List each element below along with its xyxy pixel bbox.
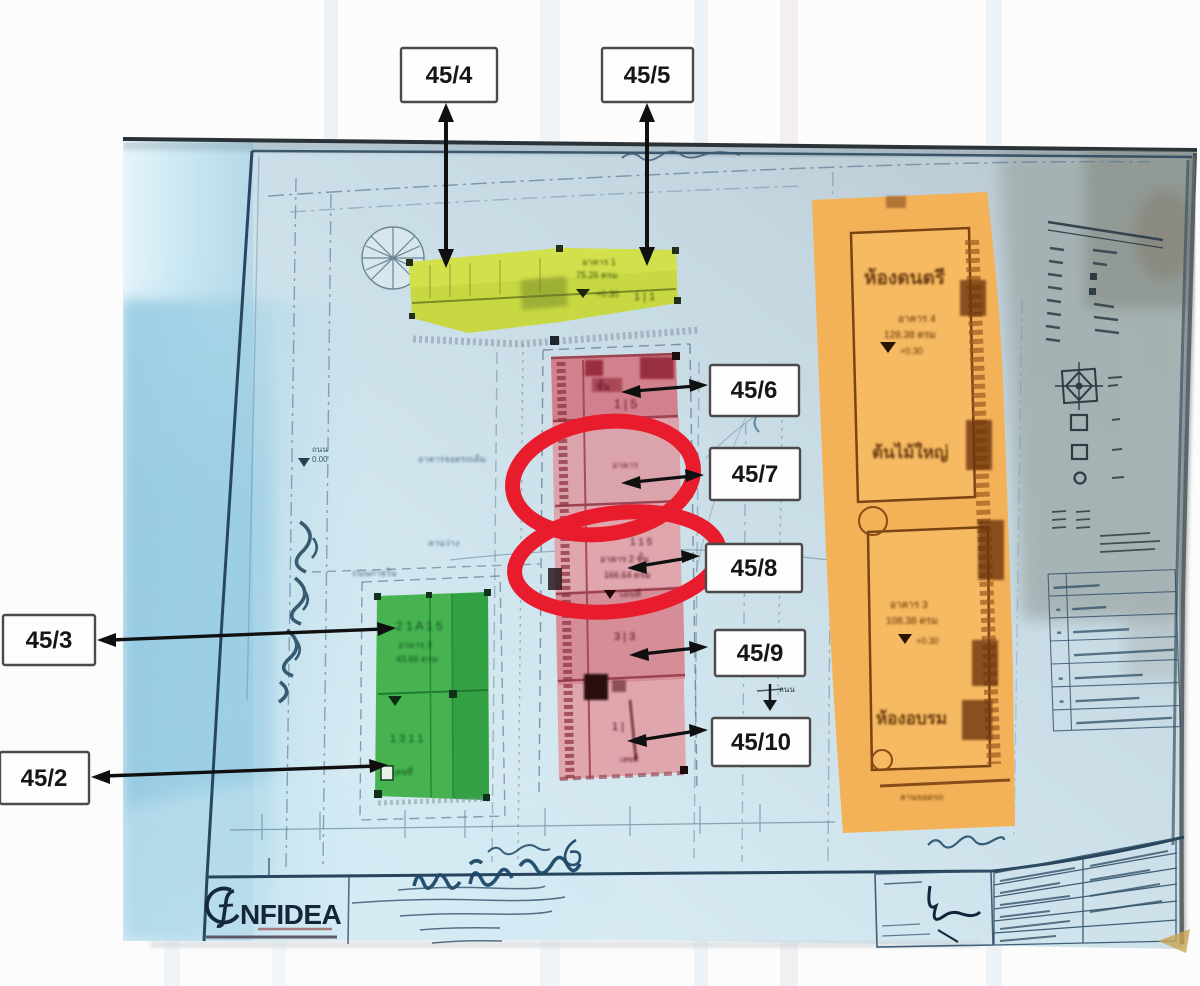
svg-text:ลานว่าง: ลานว่าง: [428, 538, 459, 548]
svg-text:ห้องอบรม: ห้องอบรม: [876, 709, 947, 728]
svg-text:ลานจอดรถ: ลานจอดรถ: [900, 792, 944, 802]
svg-text:ถนน: ถนน: [779, 685, 795, 694]
svg-text:เลขที่: เลขที่: [392, 765, 413, 777]
svg-text:43.66 ตรม: 43.66 ตรม: [396, 654, 438, 664]
svg-text:1 | 5: 1 | 5: [614, 397, 637, 411]
svg-text:อาคารจอดรถเดิม: อาคารจอดรถเดิม: [418, 454, 486, 464]
svg-text:45/8: 45/8: [731, 555, 778, 582]
svg-text:2 1 A 1 5: 2 1 A 1 5: [396, 619, 443, 633]
svg-text:45/9: 45/9: [737, 640, 784, 667]
svg-text:1 | 1: 1 | 1: [634, 291, 655, 303]
svg-text:อาคาร: อาคาร: [612, 460, 639, 470]
svg-text:+0.30: +0.30: [916, 636, 939, 646]
svg-text:45/4: 45/4: [426, 62, 473, 89]
svg-text:อาคาร 2 ชั้น: อาคาร 2 ชั้น: [600, 552, 649, 564]
svg-text:45/10: 45/10: [731, 729, 791, 756]
svg-text:1 1 5: 1 1 5: [630, 537, 653, 548]
svg-text:เลขที่: เลขที่: [620, 587, 641, 599]
svg-text:108.38 ตรม: 108.38 ตรม: [886, 616, 938, 627]
svg-text:อาคาร 3: อาคาร 3: [890, 600, 928, 611]
svg-text:NFIDEA: NFIDEA: [240, 899, 342, 930]
svg-text:ถนนภายใน: ถนนภายใน: [352, 568, 397, 578]
svg-text:อาคาร 3: อาคาร 3: [398, 640, 432, 650]
svg-text:1 |: 1 |: [612, 721, 624, 733]
svg-text:75.26 ตรม: 75.26 ตรม: [576, 270, 618, 280]
svg-text:ชั้น: ชั้น: [596, 379, 610, 393]
svg-text:อาคาร 1: อาคาร 1: [582, 257, 616, 267]
svg-text:3 | 3: 3 | 3: [614, 631, 635, 643]
svg-text:ถนน: ถนน: [312, 445, 328, 454]
svg-text:45/6: 45/6: [731, 377, 778, 404]
svg-text:45/5: 45/5: [624, 62, 671, 89]
svg-text:ห้องดนตรี: ห้องดนตรี: [864, 267, 946, 289]
svg-text:+0.30: +0.30: [900, 346, 923, 356]
svg-text:0.00: 0.00: [312, 455, 328, 464]
svg-text:45/7: 45/7: [732, 461, 779, 488]
svg-text:+0.30: +0.30: [596, 289, 619, 299]
svg-text:45/3: 45/3: [26, 627, 73, 654]
svg-text:อาคาร 4: อาคาร 4: [898, 314, 936, 325]
svg-text:ต้นไม้ใหญ่: ต้นไม้ใหญ่: [872, 442, 948, 463]
svg-text:1 3 1 1: 1 3 1 1: [390, 733, 424, 745]
svg-text:128.38 ตรม: 128.38 ตรม: [884, 330, 936, 341]
svg-text:45/2: 45/2: [21, 765, 68, 792]
